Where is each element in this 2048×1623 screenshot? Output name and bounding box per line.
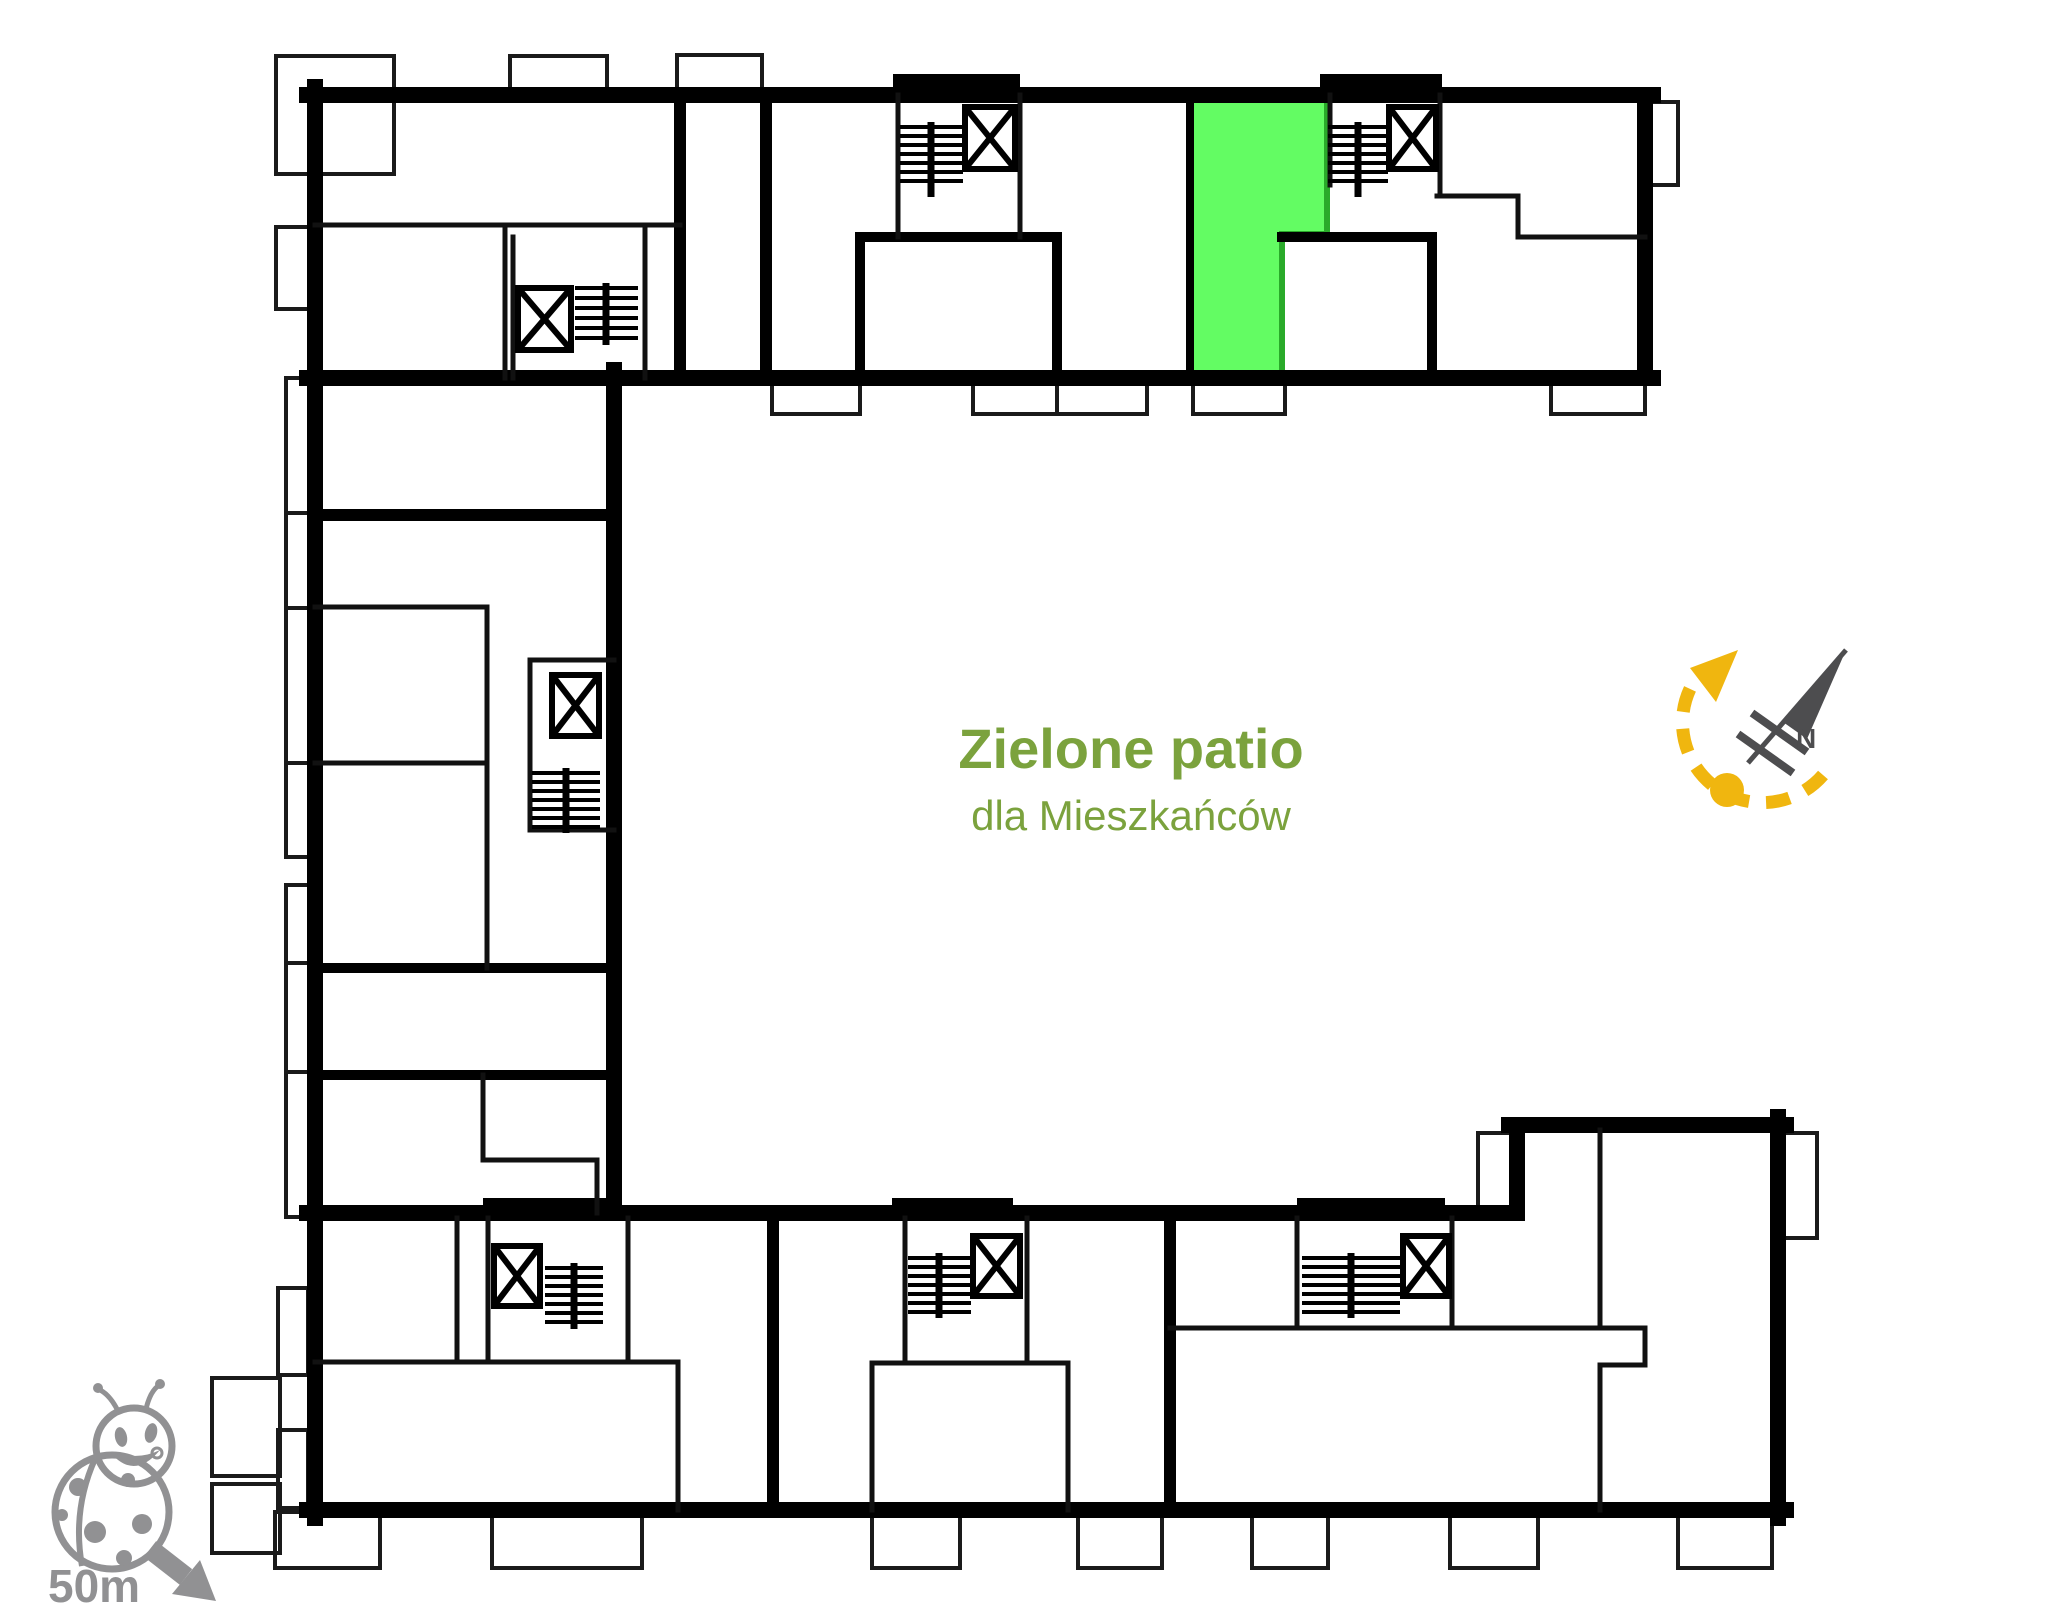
stairwell-bottom-right [1302,1236,1449,1318]
stairwell-top-middle [900,107,1015,197]
balcony [1450,1512,1538,1568]
ladybug-icon [55,1379,172,1569]
ladybug-antenna-tip [155,1379,165,1389]
stairwell-top-right [1328,107,1436,197]
ladybug-eye-right [143,1422,159,1444]
balcony [1783,1133,1817,1238]
terrace [1193,383,1285,414]
balcony [1252,1512,1328,1568]
balcony [1078,1512,1162,1568]
balcony [872,1512,960,1568]
balcony [492,1512,642,1568]
patio-subtitle: dla Mieszkańców [971,792,1291,839]
north-compass-icon: N [1683,650,1846,807]
ladybug-antenna-tip [93,1383,103,1393]
balcony [278,1288,308,1375]
balcony [510,56,607,90]
patio-label: Zielone patio dla Mieszkańców [958,717,1303,839]
scale-distance-label: 50m [48,1560,140,1612]
ladybug-wing-line [79,1459,95,1566]
balcony [275,1512,380,1568]
scale-arrow-icon [150,1549,216,1601]
balcony [276,227,309,309]
stairwell-bottom-left [494,1246,603,1329]
ladybug-scale-marker: 50m [48,1379,216,1612]
balcony [212,1484,280,1553]
balcony [276,56,394,174]
terrace [973,383,1057,414]
corridor-wall [1170,1328,1645,1510]
terrace [1057,383,1147,414]
rotation-origin-dot [1710,773,1744,807]
floor-plan-page: Zielone patio dla Mieszkańców N [0,0,2048,1623]
terrace [1551,383,1645,414]
ladybug-head [96,1408,172,1484]
ladybug-eye-left [113,1426,129,1448]
rotation-arrowhead-icon [1690,650,1738,702]
stairwell-bottom-middle [908,1236,1020,1318]
compass-needle-icon [1738,650,1846,773]
stair-core-facade-bars [483,74,1445,1215]
balcony [212,1378,280,1476]
stairwell-left-wing [532,675,600,833]
balcony [1678,1512,1772,1568]
floor-plan-svg: Zielone patio dla Mieszkańców N [0,0,2048,1623]
stairwell-top-left [518,283,638,350]
patio-title: Zielone patio [958,717,1303,780]
compass-north-label: N [1796,723,1816,754]
balcony [278,1430,308,1508]
balcony [677,55,762,90]
terrace [772,383,860,414]
scale-arrow-shaft [150,1549,186,1577]
balcony [1478,1133,1512,1213]
